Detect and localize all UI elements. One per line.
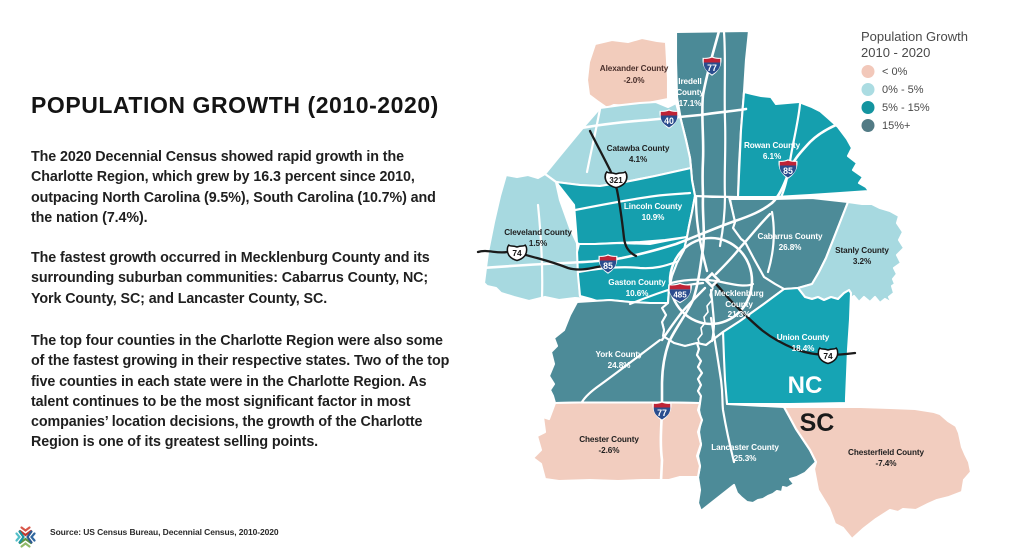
svg-text:Chesterfield County: Chesterfield County (848, 448, 924, 457)
svg-text:SC: SC (800, 409, 835, 437)
svg-text:25.3%: 25.3% (734, 454, 758, 463)
svg-text:85: 85 (783, 166, 793, 176)
svg-text:77: 77 (707, 63, 717, 73)
svg-text:-7.4%: -7.4% (876, 459, 898, 468)
svg-text:321: 321 (609, 176, 623, 185)
svg-text:4.1%: 4.1% (629, 155, 648, 164)
svg-text:Union County: Union County (777, 333, 830, 342)
svg-text:-2.6%: -2.6% (599, 446, 621, 455)
svg-text:Stanly County: Stanly County (835, 246, 889, 255)
svg-text:Gaston County: Gaston County (608, 278, 666, 287)
svg-text:40: 40 (664, 116, 674, 126)
svg-text:Chester County: Chester County (579, 435, 639, 444)
svg-text:-2.0%: -2.0% (624, 76, 646, 85)
svg-text:10.6%: 10.6% (626, 289, 650, 298)
svg-text:24.8%: 24.8% (608, 361, 632, 370)
svg-text:1.5%: 1.5% (529, 239, 548, 248)
svg-text:85: 85 (603, 261, 613, 271)
svg-text:3.2%: 3.2% (853, 257, 872, 266)
svg-text:Catawba County: Catawba County (607, 144, 670, 153)
svg-text:NC: NC (788, 372, 823, 399)
svg-text:485: 485 (673, 291, 687, 300)
svg-text:Lincoln County: Lincoln County (624, 202, 683, 211)
svg-text:15%+: 15%+ (882, 120, 910, 132)
svg-text:74: 74 (823, 351, 833, 361)
svg-text:Population Growth: Population Growth (861, 29, 968, 44)
svg-text:Lancaster County: Lancaster County (711, 443, 779, 452)
svg-text:Alexander County: Alexander County (600, 64, 669, 73)
svg-text:6.1%: 6.1% (763, 152, 782, 161)
svg-text:Iredell: Iredell (678, 77, 701, 86)
svg-text:York County: York County (596, 350, 644, 359)
svg-text:2010 - 2020: 2010 - 2020 (861, 45, 930, 60)
svg-text:77: 77 (657, 408, 667, 418)
svg-text:Cleveland County: Cleveland County (504, 228, 572, 237)
svg-text:18.4%: 18.4% (792, 344, 816, 353)
svg-text:26.8%: 26.8% (779, 243, 803, 252)
svg-text:County: County (725, 300, 753, 309)
svg-text:10.9%: 10.9% (642, 213, 666, 222)
svg-text:< 0%: < 0% (882, 66, 908, 78)
svg-text:17.1%: 17.1% (679, 99, 703, 108)
svg-text:County: County (676, 88, 704, 97)
svg-text:5% - 15%: 5% - 15% (882, 102, 930, 114)
svg-text:74: 74 (512, 248, 522, 258)
svg-text:0% - 5%: 0% - 5% (882, 84, 924, 96)
svg-text:21.3%: 21.3% (728, 310, 752, 319)
svg-text:Rowan County: Rowan County (744, 141, 801, 150)
svg-text:Mecklenburg: Mecklenburg (714, 289, 763, 298)
svg-text:Cabarrus County: Cabarrus County (758, 232, 823, 241)
